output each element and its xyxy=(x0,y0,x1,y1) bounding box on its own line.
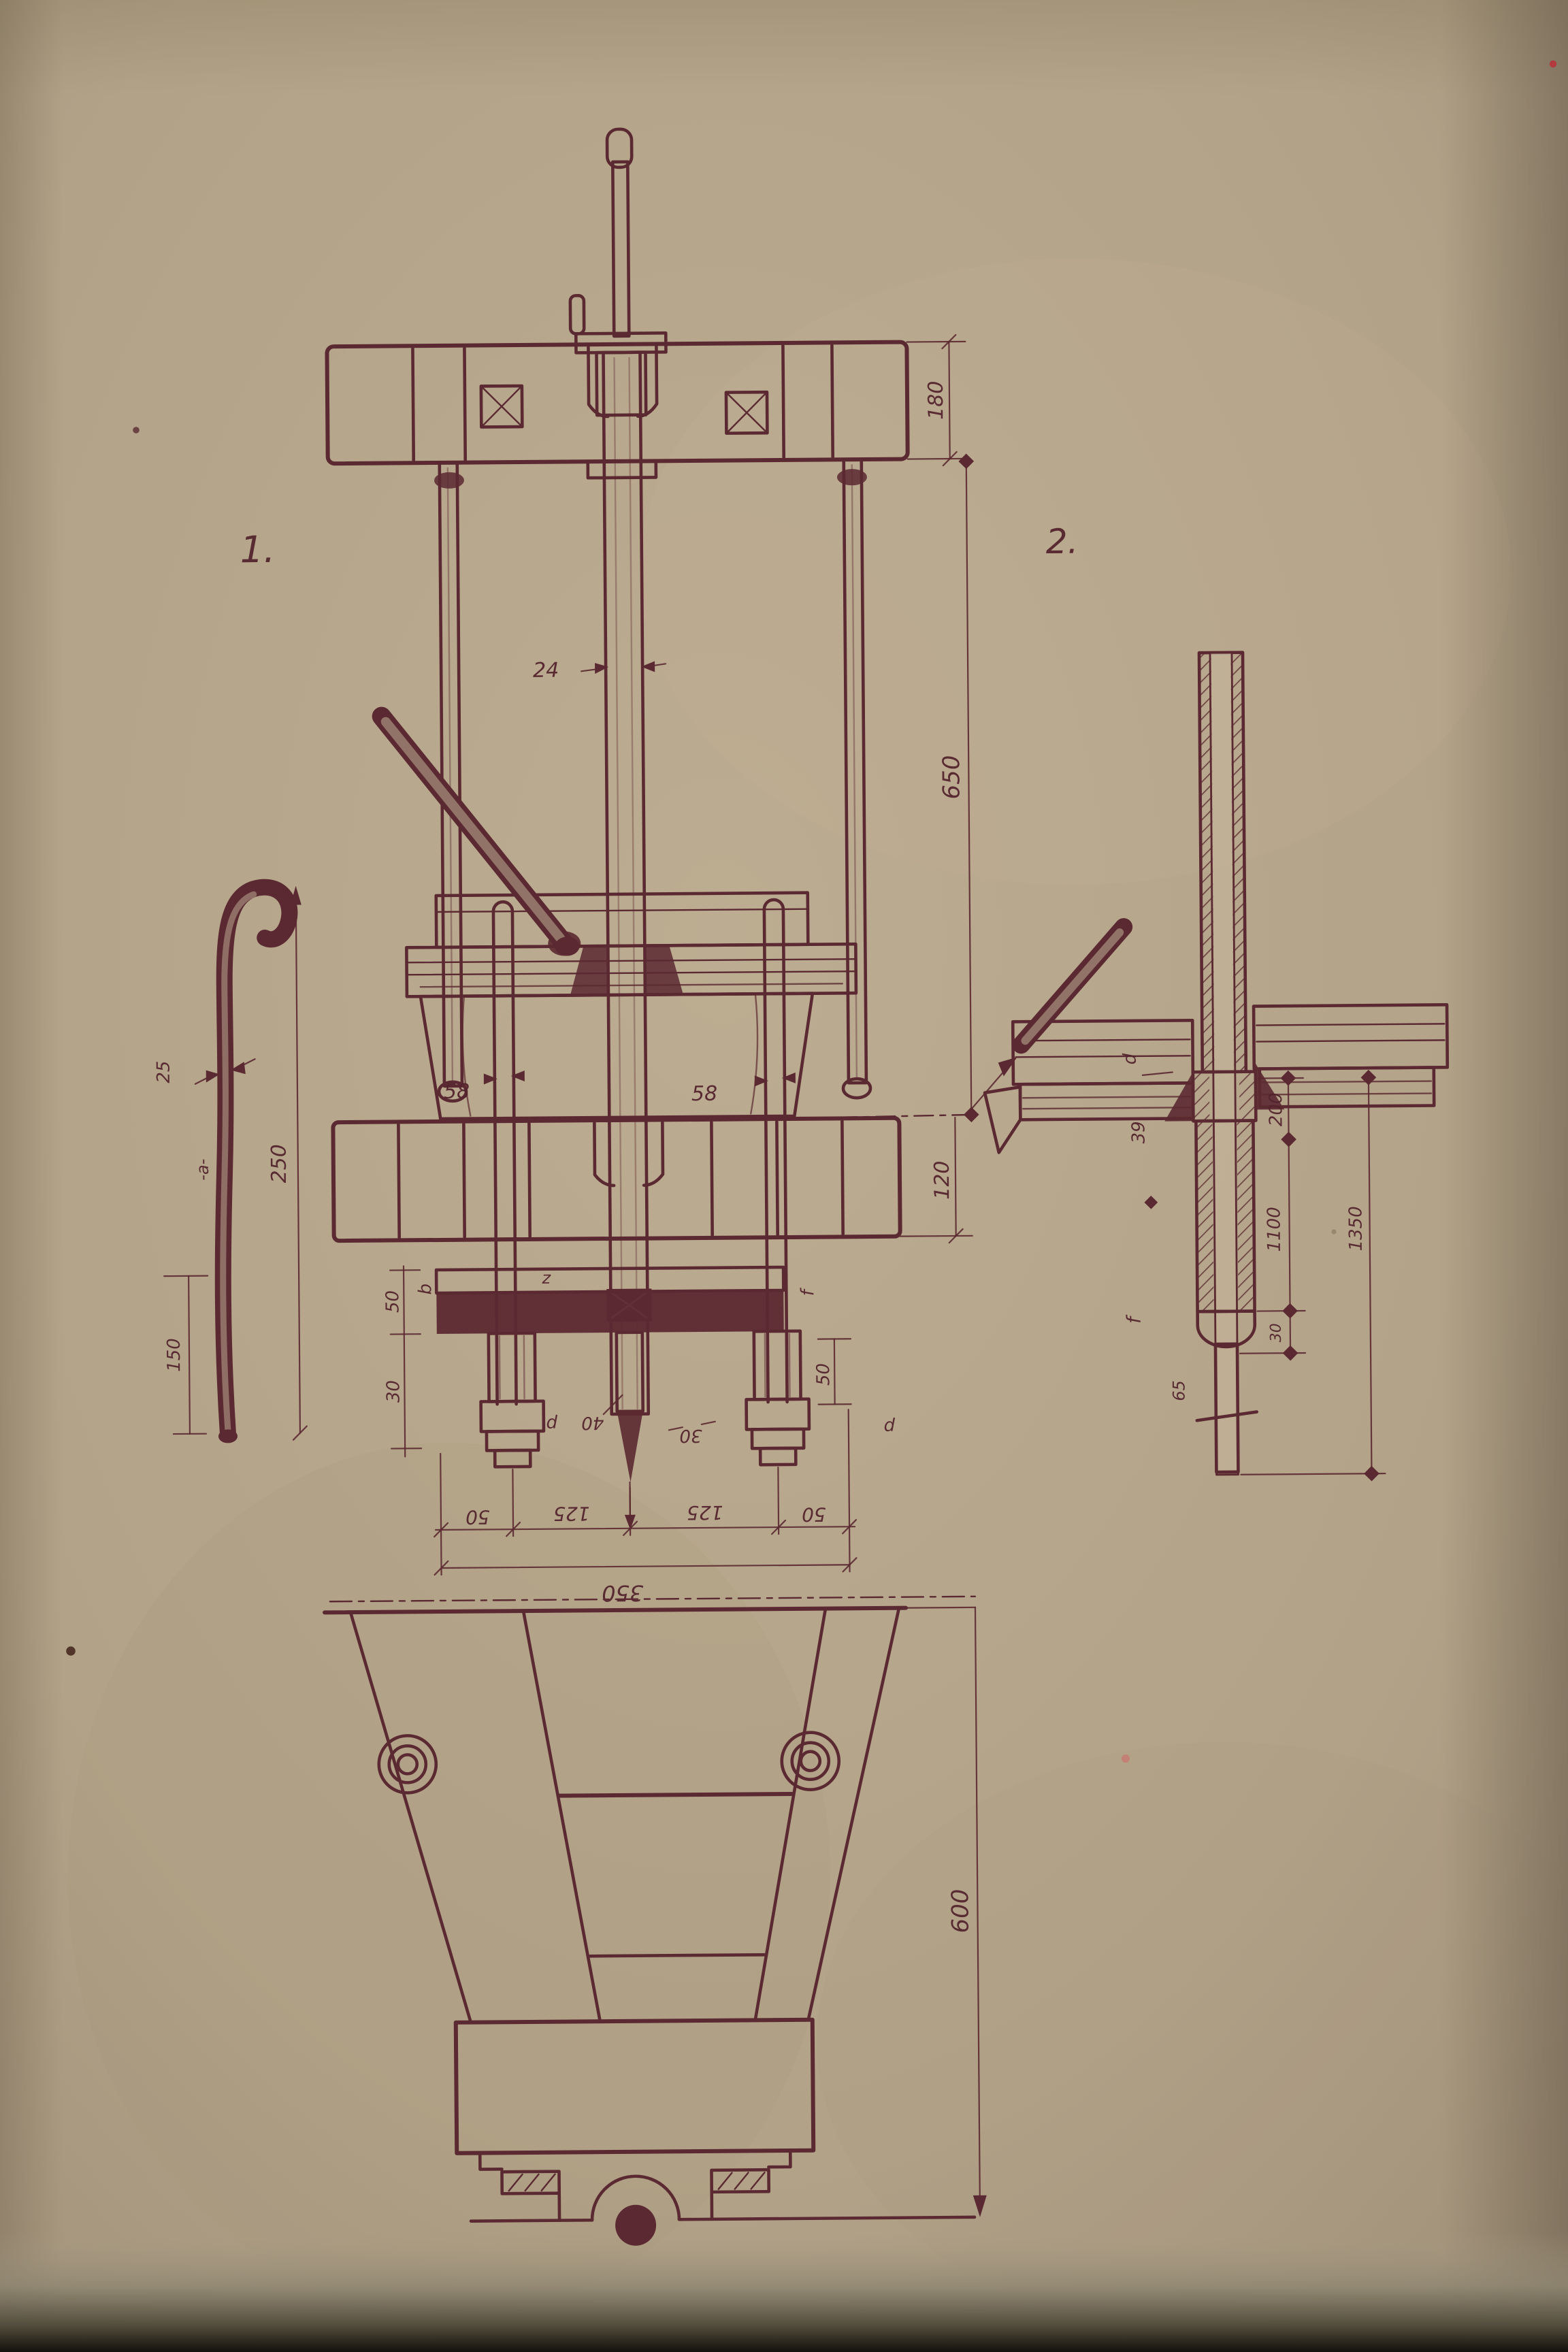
ref-d-left: d xyxy=(546,1413,557,1433)
dim-58-left: 58 xyxy=(444,1080,470,1104)
dim-1100: 1100 xyxy=(1264,1207,1285,1252)
dim-chain-50a: 50 xyxy=(465,1505,490,1528)
figure-1-label: 1. xyxy=(240,528,276,571)
dim-1350: 1350 xyxy=(1345,1206,1367,1251)
pivot-ball xyxy=(615,2205,656,2246)
dim-30-center: 30 xyxy=(679,1425,702,1445)
dim-25: 25 xyxy=(154,1060,174,1083)
dim-350: 350 xyxy=(602,1580,643,1606)
dim-200: 200 xyxy=(1266,1092,1286,1126)
dim-39: 39 xyxy=(1128,1121,1149,1143)
dim-30-step: 30 xyxy=(1268,1323,1285,1342)
dark-fleck xyxy=(66,1646,76,1656)
dim-65: 65 xyxy=(1169,1380,1188,1401)
dim-58-right: 58 xyxy=(691,1082,717,1106)
dim-120: 120 xyxy=(930,1160,954,1200)
pink-speck xyxy=(1122,1754,1130,1763)
dim-50-left: 50 xyxy=(382,1290,403,1313)
dim-chain-50b: 50 xyxy=(802,1503,826,1526)
ref-d-collar: d xyxy=(1120,1053,1141,1064)
dim-chain-125b: 125 xyxy=(687,1501,723,1524)
ref-b: b xyxy=(415,1284,436,1295)
ref-z: z xyxy=(541,1271,551,1290)
dim-600: 600 xyxy=(947,1889,975,1933)
dim-50-right: 50 xyxy=(813,1363,834,1386)
dim-150: 150 xyxy=(164,1338,184,1372)
dim-650: 650 xyxy=(938,755,966,799)
dim-250: 250 xyxy=(267,1144,291,1183)
ref-a-section: -a- xyxy=(193,1159,212,1181)
photo-of-drawing: 1. xyxy=(0,0,1568,2352)
dim-24: 24 xyxy=(533,659,559,683)
ref-d-right: d xyxy=(884,1416,896,1436)
ink-dot xyxy=(133,427,140,434)
figure-2-label: 2. xyxy=(1045,522,1078,561)
red-speck xyxy=(1550,61,1556,67)
dim-180: 180 xyxy=(924,380,948,420)
dim-40: 40 xyxy=(581,1412,604,1433)
dim-30-left: 30 xyxy=(383,1380,404,1403)
dim-chain-125a: 125 xyxy=(553,1502,590,1524)
